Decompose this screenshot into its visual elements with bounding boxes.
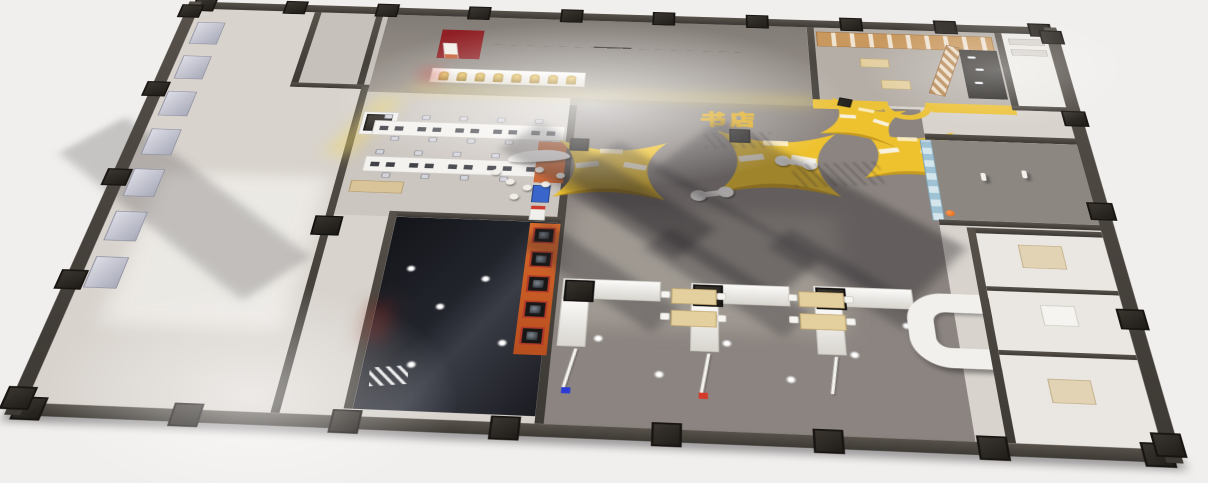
gold-statue bbox=[529, 74, 540, 83]
desk-module bbox=[448, 123, 488, 138]
office-chair bbox=[390, 136, 400, 141]
office-chair bbox=[452, 152, 462, 157]
desk-module bbox=[410, 122, 451, 137]
gold-statue bbox=[566, 75, 577, 84]
desk-module bbox=[487, 124, 527, 139]
north-east-shelf bbox=[1008, 39, 1046, 46]
gold-statue bbox=[456, 72, 468, 81]
office-chair bbox=[413, 150, 423, 155]
desk-module bbox=[372, 121, 413, 136]
office-chair bbox=[384, 114, 394, 119]
desk-module bbox=[363, 156, 405, 171]
wall-pillar bbox=[813, 429, 846, 455]
monitor bbox=[546, 131, 555, 136]
media-room-south-wall bbox=[939, 219, 1105, 230]
monitor bbox=[385, 162, 395, 167]
gold-statue bbox=[474, 72, 486, 81]
wall-pillar bbox=[488, 415, 521, 440]
locker-cubby bbox=[519, 326, 545, 345]
wall-pillar bbox=[559, 9, 583, 23]
gold-statue bbox=[511, 74, 522, 83]
counter-dish bbox=[975, 68, 984, 70]
monitor bbox=[370, 162, 380, 167]
wall-pillar bbox=[282, 1, 309, 15]
monitor bbox=[455, 128, 464, 133]
office-chair bbox=[459, 116, 468, 121]
gold-statue bbox=[438, 71, 450, 80]
north-east-shelf bbox=[1010, 49, 1048, 57]
office-chair bbox=[543, 141, 552, 146]
locker-cubby bbox=[525, 275, 550, 293]
wall-pillar bbox=[467, 6, 492, 20]
desk-module bbox=[402, 158, 444, 173]
dark-room-logo-stripes bbox=[369, 365, 408, 386]
cafe-table bbox=[881, 80, 912, 90]
wall-pillar bbox=[374, 4, 400, 18]
office-chair bbox=[459, 175, 469, 181]
floorplan-render-canvas: { "scene": { "description": "3D isometri… bbox=[0, 0, 1208, 483]
office-chair bbox=[421, 115, 430, 120]
se-room-fixture bbox=[1018, 245, 1068, 270]
office-chair bbox=[497, 118, 506, 123]
office-chair bbox=[428, 137, 438, 142]
wall-pillar bbox=[746, 15, 769, 29]
wall-pillar bbox=[1038, 30, 1065, 44]
monitor bbox=[409, 163, 419, 168]
monitor bbox=[394, 126, 404, 131]
monitor bbox=[470, 129, 479, 134]
counter-dish bbox=[967, 56, 976, 58]
office-chair bbox=[381, 172, 391, 178]
office-chair bbox=[530, 154, 539, 159]
desk-module bbox=[525, 126, 565, 141]
gold-statue bbox=[492, 73, 504, 82]
monitor bbox=[424, 164, 434, 169]
desk-row-2 bbox=[362, 156, 562, 178]
stool bbox=[541, 181, 551, 187]
kiosk-poster bbox=[443, 43, 459, 61]
cafe-table bbox=[860, 58, 890, 68]
monitor bbox=[379, 126, 389, 131]
wall-pillar bbox=[653, 12, 676, 26]
monitor bbox=[531, 131, 540, 136]
wall-pillar bbox=[327, 409, 363, 434]
media-room-floor bbox=[925, 140, 1099, 225]
gold-statue bbox=[547, 75, 558, 84]
monitor bbox=[448, 164, 458, 169]
monitor bbox=[417, 127, 426, 132]
wall-pillar bbox=[839, 18, 863, 32]
se-room-fixture bbox=[1047, 379, 1097, 405]
wall-pillar bbox=[933, 20, 959, 34]
desk-module bbox=[480, 160, 521, 175]
wall-pillar bbox=[1115, 308, 1150, 330]
office-chair bbox=[420, 174, 430, 180]
monitor bbox=[526, 167, 535, 172]
building-plan: 书店 bbox=[4, 1, 1183, 463]
office-chair bbox=[466, 138, 476, 143]
office-chair bbox=[535, 119, 544, 124]
monitor bbox=[508, 130, 517, 135]
desk-module bbox=[441, 159, 483, 174]
office-chair bbox=[491, 153, 501, 158]
monitor bbox=[463, 165, 473, 170]
office-chair bbox=[505, 140, 514, 145]
office-chair bbox=[375, 149, 385, 154]
counter-dish bbox=[975, 82, 984, 85]
monitor bbox=[432, 127, 441, 132]
wall-pillar bbox=[1061, 110, 1090, 126]
se-room-fixture bbox=[1040, 305, 1080, 327]
monitor bbox=[502, 166, 511, 171]
monitor bbox=[493, 130, 502, 135]
